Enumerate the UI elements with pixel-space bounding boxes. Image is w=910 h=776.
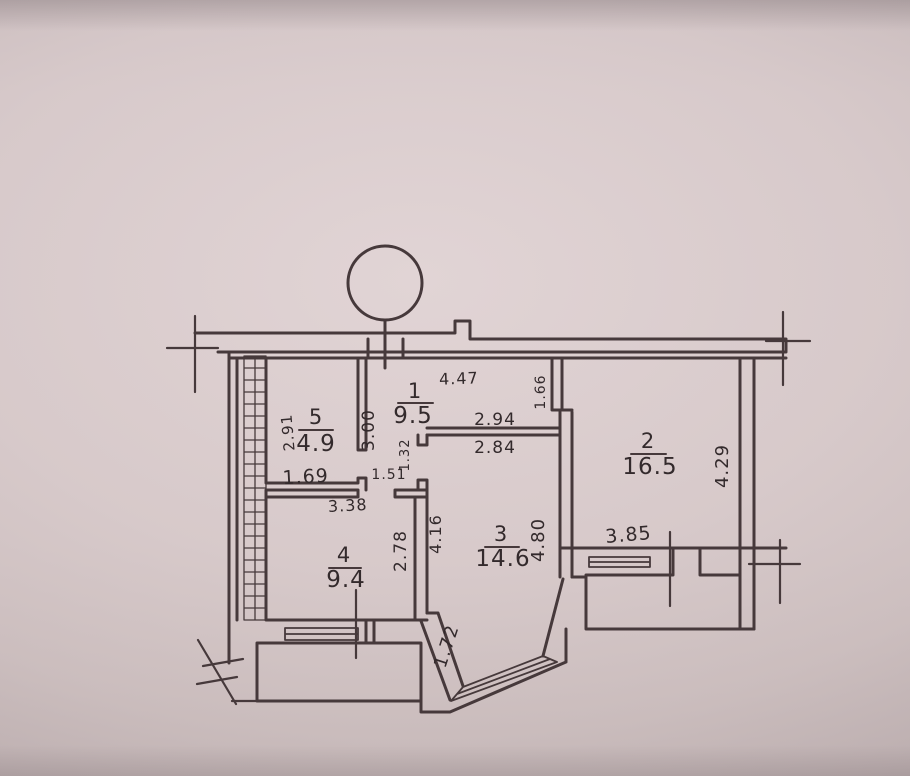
dim-hall-width: 4.47 <box>439 368 479 388</box>
dim-room2-right: 4.29 <box>712 444 733 488</box>
top-wall <box>195 321 786 358</box>
dim-room3-diagonal: 1.72 <box>430 622 464 670</box>
dim-room5-width: 1.69 <box>282 465 329 489</box>
room4-area: 9.4 <box>326 567 366 593</box>
room5-area: 4.9 <box>296 431 336 457</box>
room3-number: 3 <box>494 522 508 546</box>
break-symbol <box>197 640 257 704</box>
room4-number: 4 <box>337 543 351 567</box>
dim-room2-bottom: 3.85 <box>604 522 652 548</box>
dim-hall-right: 1.66 <box>533 374 549 409</box>
room5-number: 5 <box>309 405 323 429</box>
dim-room3-top-outer: 2.94 <box>474 410 516 430</box>
room2-area: 16.5 <box>622 454 677 480</box>
riser-circle-symbol <box>348 246 422 320</box>
riser-stem-line <box>368 320 403 368</box>
room2-window-wall <box>740 358 754 629</box>
room1-area: 9.5 <box>393 403 433 429</box>
dim-room4-right: 2.78 <box>391 530 411 572</box>
photo-background: 1 9.5 4.47 3.00 1.66 1.51 1.32 5 4.9 2.9… <box>0 0 910 776</box>
dim-room3-right: 4.80 <box>528 518 549 562</box>
room2-number: 2 <box>641 429 655 453</box>
room4-balcony-window <box>285 628 358 640</box>
dim-room3-top-inner: 2.84 <box>474 438 516 458</box>
dim-hall-height: 3.00 <box>359 409 379 451</box>
left-balcony <box>257 620 421 701</box>
dim-room4-width: 3.38 <box>327 495 368 516</box>
room2-left-walls <box>552 358 572 577</box>
room3-area: 14.6 <box>475 546 530 572</box>
left-wall <box>229 352 237 663</box>
shaft-grid <box>244 356 266 620</box>
room3-diagonal-window <box>451 656 557 701</box>
room1-number: 1 <box>408 379 422 403</box>
floor-plan-drawing: 1 9.5 4.47 3.00 1.66 1.51 1.32 5 4.9 2.9… <box>0 0 910 776</box>
dim-nook-height: 1.32 <box>398 439 413 472</box>
dim-room3-left: 4.16 <box>426 514 445 554</box>
right-balcony <box>572 577 754 629</box>
room2-balcony-window <box>589 557 650 567</box>
dim-room5-height: 2.91 <box>277 413 298 452</box>
